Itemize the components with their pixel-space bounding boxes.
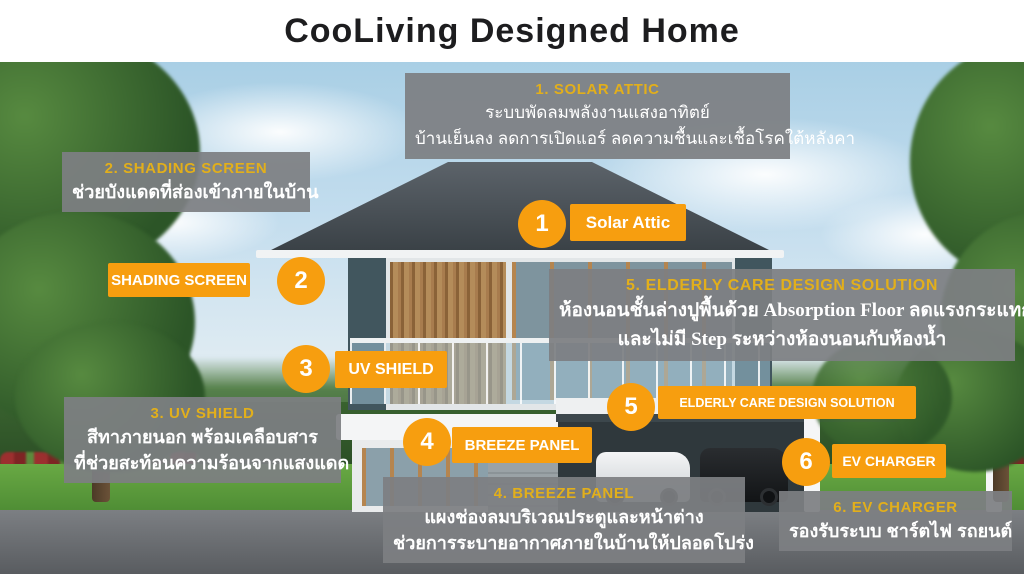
- callout-panel-elderly-care: 5. ELDERLY CARE DESIGN SOLUTION ห้องนอนช…: [549, 269, 1015, 361]
- number-badge-5: 5: [607, 383, 655, 431]
- callout-panel-solar-attic: 1. SOLAR ATTIC ระบบพัดลมพลังงานแสงอาทิตย…: [405, 73, 790, 159]
- feature-label-shading-screen: SHADING SCREEN: [108, 263, 250, 297]
- callout-panel-breeze-panel: 4. BREEZE PANEL แผงช่องลมบริเวณประตูและห…: [383, 477, 745, 563]
- callout-line: แผงช่องลมบริเวณประตูและหน้าต่าง: [393, 504, 735, 530]
- callout-line: ช่วยการระบายอากาศภายในบ้านให้ปลอดโปร่ง: [393, 530, 735, 556]
- callout-panel-uv-shield: 3. UV SHIELD สีทาภายนอก พร้อมเคลือบสาร ท…: [64, 397, 341, 483]
- feature-label-ev-charger: EV CHARGER: [832, 444, 946, 478]
- callout-panel-ev-charger: 6. EV CHARGER รองรับระบบ ชาร์ตไฟ รถยนต์: [779, 491, 1012, 551]
- car-wheel: [760, 488, 778, 506]
- page-title: CooLiving Designed Home: [284, 12, 740, 51]
- callout-line: ห้องนอนชั้นล่างปูพื้นด้วย Absorption Flo…: [559, 296, 1005, 325]
- feature-label-solar-attic: Solar Attic: [570, 204, 686, 241]
- callout-line: ที่ช่วยสะท้อนความร้อนจากแสงแดด: [74, 450, 331, 476]
- callout-header: 2. SHADING SCREEN: [72, 158, 300, 179]
- feature-label-breeze-panel: BREEZE PANEL: [452, 427, 592, 463]
- callout-line: บ้านเย็นลง ลดการเปิดแอร์ ลดความชื้นและเช…: [415, 126, 780, 152]
- number-badge-2: 2: [277, 257, 325, 305]
- title-bar: CooLiving Designed Home: [0, 0, 1024, 62]
- callout-header: 3. UV SHIELD: [74, 403, 331, 424]
- callout-line: สีทาภายนอก พร้อมเคลือบสาร: [74, 424, 331, 450]
- feature-label-elderly-care: ELDERLY CARE DESIGN SOLUTION: [658, 386, 916, 419]
- number-badge-1: 1: [518, 200, 566, 248]
- callout-panel-shading-screen: 2. SHADING SCREEN ช่วยบังแดดที่ส่องเข้าภ…: [62, 152, 310, 212]
- callout-header: 4. BREEZE PANEL: [393, 483, 735, 504]
- number-badge-4: 4: [403, 418, 451, 466]
- feature-label-uv-shield: UV SHIELD: [335, 351, 447, 388]
- callout-line: รองรับระบบ ชาร์ตไฟ รถยนต์: [789, 518, 1002, 544]
- callout-line: ระบบพัดลมพลังงานแสงอาทิตย์: [415, 100, 780, 126]
- callout-header: 6. EV CHARGER: [789, 497, 1002, 518]
- roof-fascia: [256, 250, 784, 258]
- callout-header: 1. SOLAR ATTIC: [415, 79, 780, 100]
- number-badge-3: 3: [282, 345, 330, 393]
- callout-line: ช่วยบังแดดที่ส่องเข้าภายในบ้าน: [72, 179, 300, 205]
- callout-header: 5. ELDERLY CARE DESIGN SOLUTION: [559, 275, 1005, 296]
- callout-line: และไม่มี Step ระหว่างห้องนอนกับห้องน้ำ: [559, 325, 1005, 354]
- number-badge-6: 6: [782, 438, 830, 486]
